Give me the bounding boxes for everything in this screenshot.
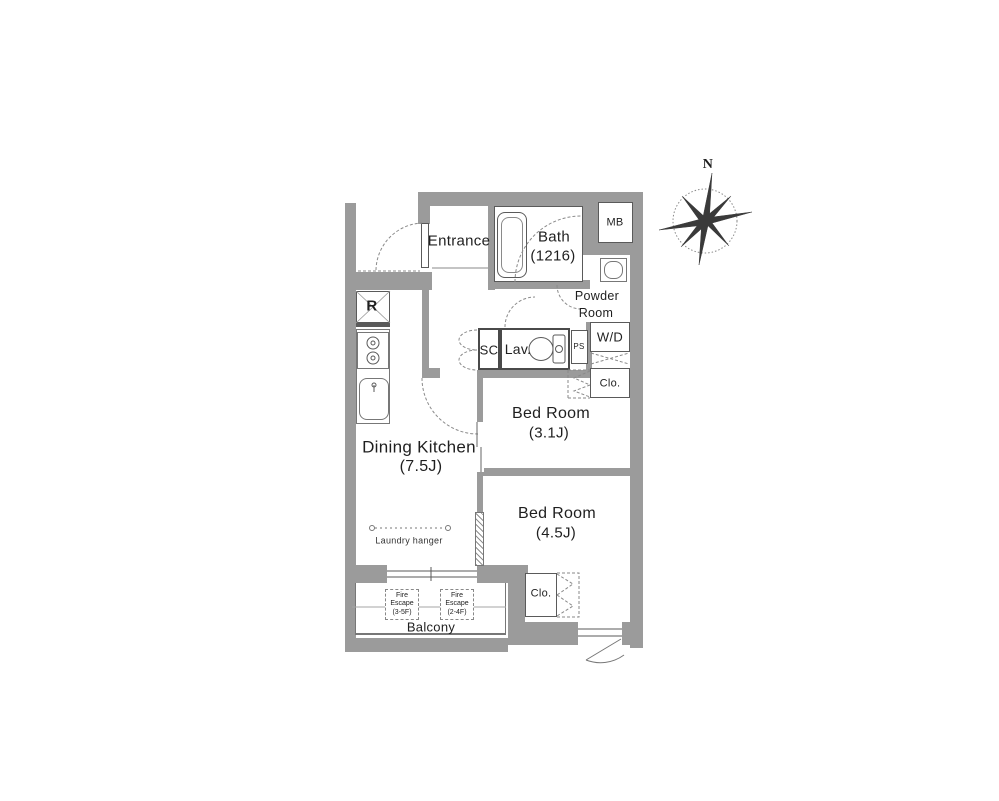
dk-door-arc xyxy=(422,378,478,434)
wall-corridor-corner xyxy=(422,368,440,378)
pipe-space-label: PS xyxy=(573,343,584,351)
refrigerator-label: R xyxy=(366,299,377,314)
dining-kitchen-label: Dining Kitchen xyxy=(362,439,476,456)
bath-label: Bath xyxy=(538,230,570,245)
floor-plan: Fire Escape (3-5F) Fire Escape (2-4F) xyxy=(0,0,999,801)
bath-size-label: (1216) xyxy=(530,249,575,264)
kitchen-sink xyxy=(359,378,389,420)
wall-alcove-bottom xyxy=(345,272,432,290)
fire-escape-2-line3: (2-4F) xyxy=(447,609,466,617)
fire-escape-2-line1: Fire xyxy=(451,592,463,600)
laundry-hanger-label: Laundry hanger xyxy=(375,537,442,546)
wall-bedroom2-bottom xyxy=(508,622,643,645)
washer-dryer-label: W/D xyxy=(597,331,623,344)
powder-sink-basin xyxy=(604,261,623,279)
lavatory-label: Lav. xyxy=(505,342,532,356)
fire-escape-hatch-1: Fire Escape (3-5F) xyxy=(385,589,419,620)
powder-room-label-line2: Room xyxy=(579,307,614,320)
wall-under-mb xyxy=(590,243,630,255)
bedroom1-label: Bed Room xyxy=(512,406,590,422)
meter-box-label: MB xyxy=(606,218,623,229)
plan-linework xyxy=(0,0,999,801)
wall-corridor-left xyxy=(422,288,429,370)
compass-rose xyxy=(659,173,752,265)
compass-north-label: N xyxy=(703,158,713,172)
compass-circle xyxy=(673,189,737,253)
fire-escape-hatch-2: Fire Escape (2-4F) xyxy=(440,589,474,620)
bedroom2-window xyxy=(578,622,622,645)
bathtub-inner xyxy=(501,217,523,273)
fire-escape-1-line3: (3-5F) xyxy=(392,609,411,617)
dining-kitchen-size-label: (7.5J) xyxy=(400,459,443,475)
powder-room-label-line1: Powder xyxy=(575,290,619,303)
compass-point-east xyxy=(705,212,752,225)
dk-window xyxy=(387,565,477,583)
shoe-closet-door-arcs xyxy=(459,330,477,370)
refrigerator-base-line xyxy=(356,323,390,327)
closet-bedroom2-label: Clo. xyxy=(531,589,552,600)
laundry-hanger-end-left xyxy=(370,526,375,531)
laundry-hanger-end-right xyxy=(446,526,451,531)
stove xyxy=(357,332,389,369)
bedroom1-size-label: (3.1J) xyxy=(529,426,569,441)
compass-point-se xyxy=(702,216,729,246)
fire-escape-1-line1: Fire xyxy=(396,592,408,600)
compass-point-ne xyxy=(703,196,731,224)
compass-point-sw xyxy=(681,218,708,247)
closet2-door-outline xyxy=(557,573,579,617)
lavatory-door-arc xyxy=(505,297,535,327)
closet-bedroom1-label: Clo. xyxy=(600,379,621,390)
entrance-label: Entrance xyxy=(428,234,490,249)
wall-bedroom-divider xyxy=(477,468,630,476)
fire-escape-2-line2: Escape xyxy=(445,600,468,608)
shoe-closet-label: SC xyxy=(480,344,499,357)
compass-point-north xyxy=(702,173,712,224)
wall-right xyxy=(630,192,643,648)
bedroom2-label: Bed Room xyxy=(518,506,596,522)
wall-below-balcony xyxy=(345,638,508,652)
compass-point-west xyxy=(659,218,705,230)
compass-point-south xyxy=(699,219,709,265)
compass-point-nw xyxy=(682,196,707,224)
sliding-door-bedroom2 xyxy=(475,512,484,566)
wall-under-lavatory xyxy=(477,370,592,378)
wd-door-dashes xyxy=(591,353,629,364)
entrance-door-arc xyxy=(376,223,422,270)
sliding-door-bedroom1 xyxy=(476,422,484,472)
bedroom2-size-label: (4.5J) xyxy=(536,526,576,541)
fire-escape-1-line2: Escape xyxy=(390,600,413,608)
closet2-door-chevrons xyxy=(557,574,573,616)
balcony-label: Balcony xyxy=(407,621,455,634)
wall-entrance-corner xyxy=(418,206,430,224)
